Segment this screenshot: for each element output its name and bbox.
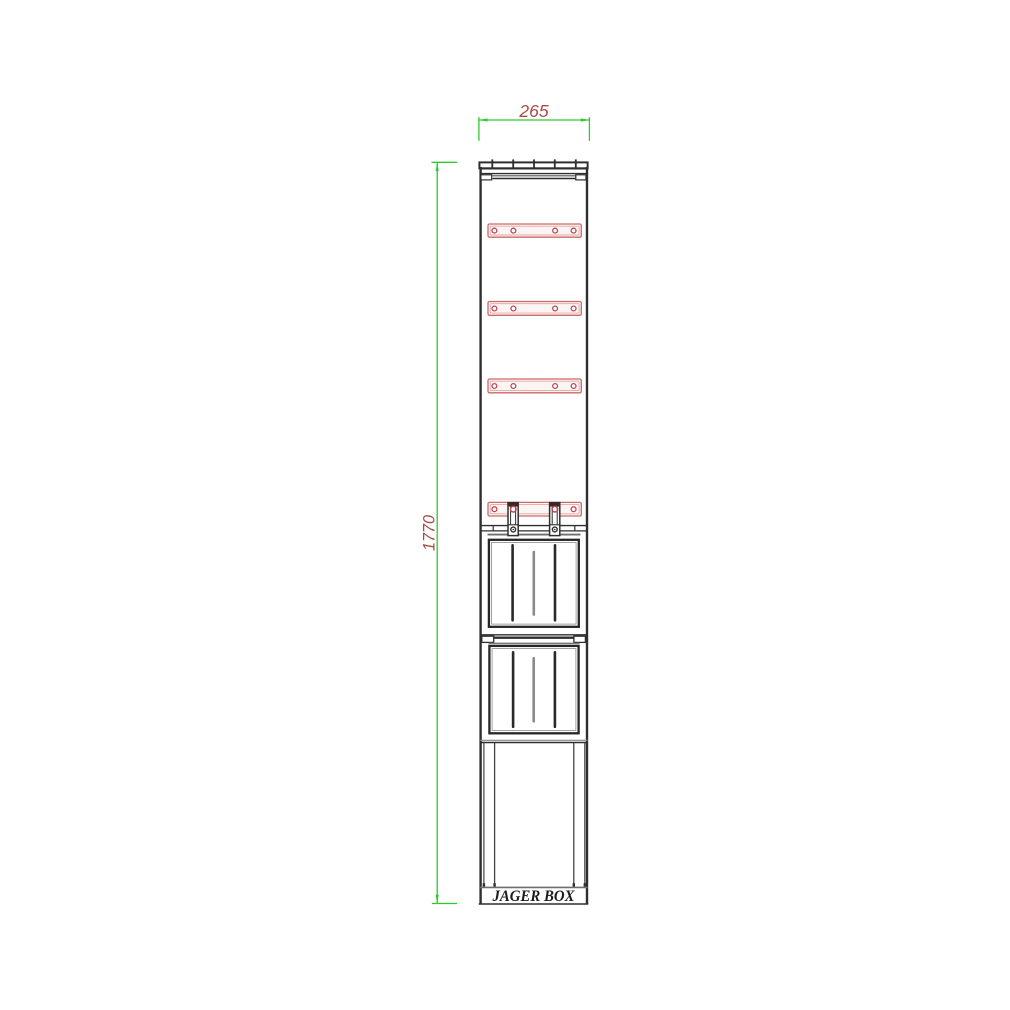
svg-text:1770: 1770 — [420, 514, 439, 551]
svg-text:JAGER BOX: JAGER BOX — [492, 888, 575, 905]
svg-text:265: 265 — [518, 101, 548, 121]
